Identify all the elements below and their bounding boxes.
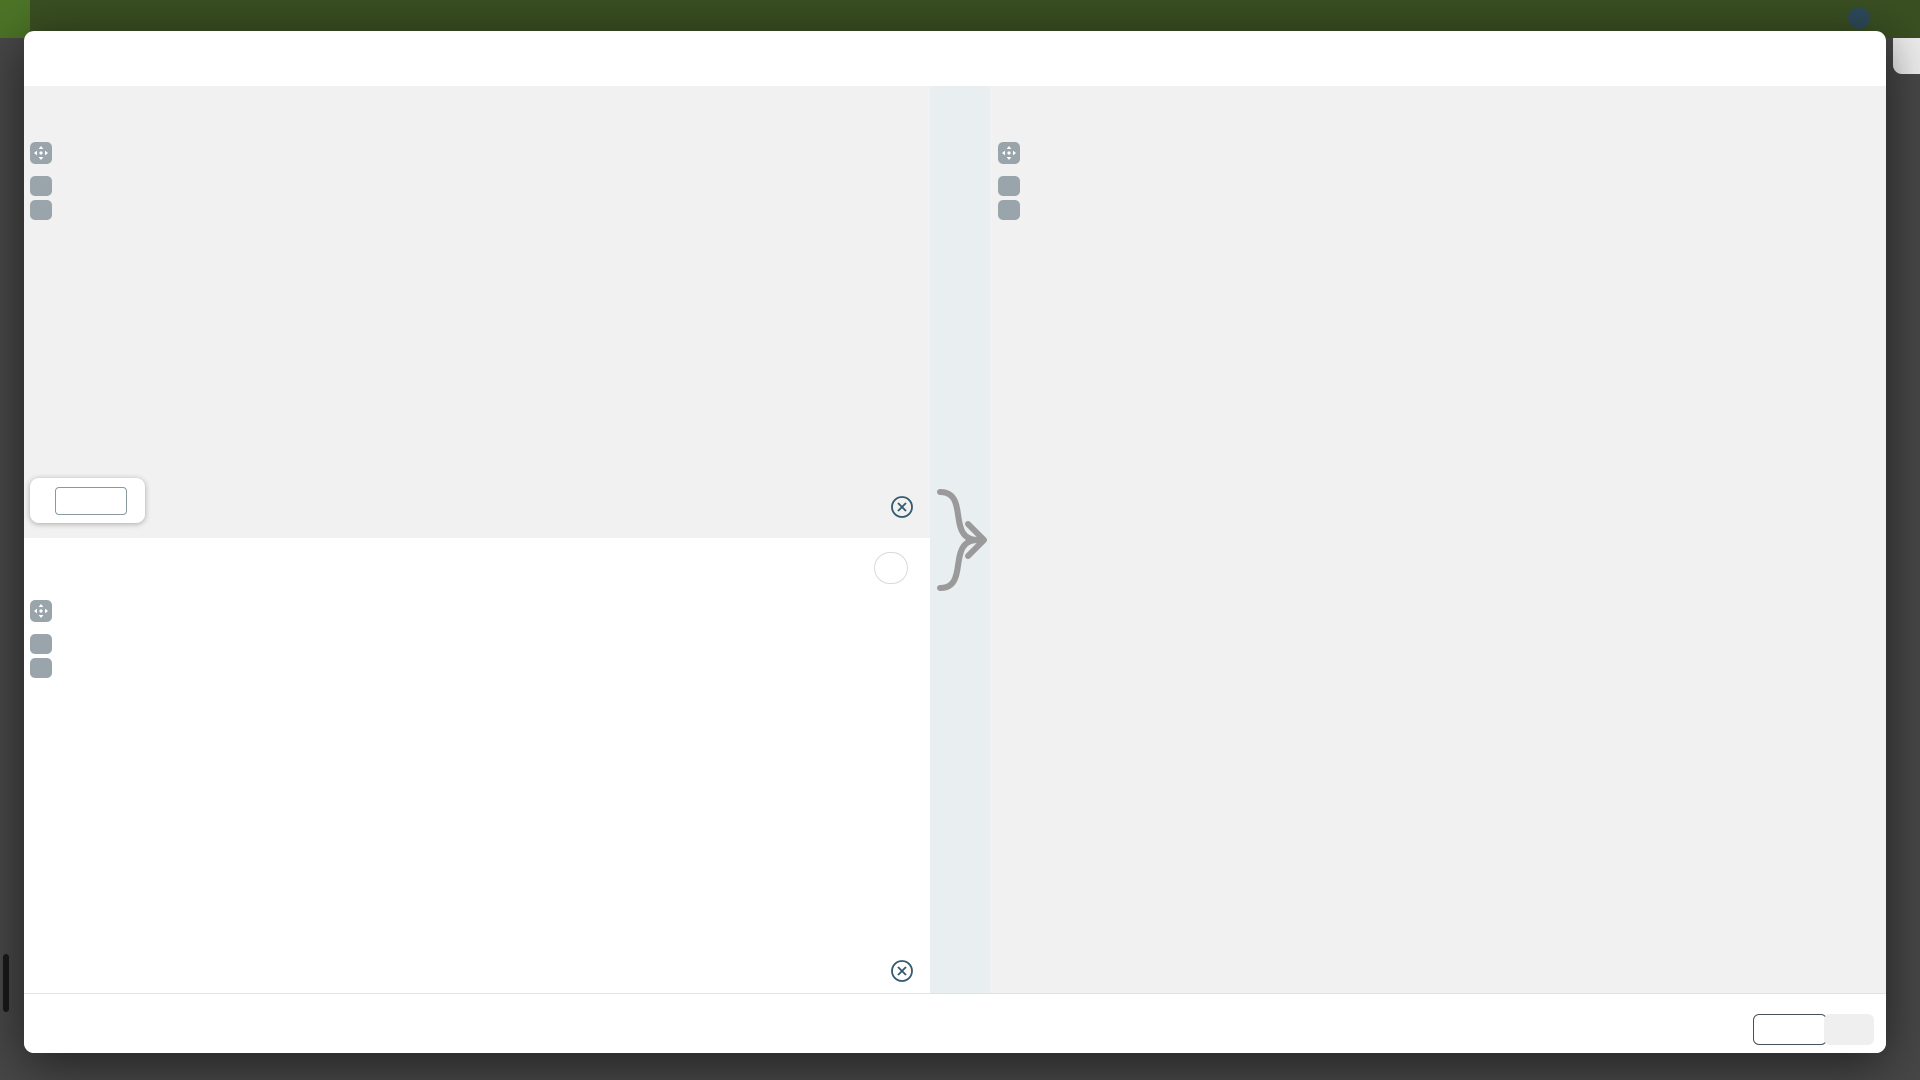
current-drawing-panel bbox=[24, 86, 930, 538]
user-menu[interactable] bbox=[1848, 7, 1884, 29]
cancel-button[interactable] bbox=[1753, 1014, 1827, 1045]
match-drawing-panel bbox=[24, 538, 930, 993]
zoom-in-button[interactable] bbox=[998, 176, 1020, 196]
merge-gutter bbox=[930, 86, 990, 993]
background-scrollbar[interactable] bbox=[3, 954, 9, 1012]
dialog-footer bbox=[24, 993, 1886, 1053]
zoom-out-button[interactable] bbox=[30, 200, 52, 220]
pan-button[interactable] bbox=[998, 142, 1020, 164]
placement-dialog bbox=[24, 31, 1886, 1053]
pan-button[interactable] bbox=[30, 142, 52, 164]
combined-display-panel bbox=[990, 86, 1886, 993]
level-badge[interactable] bbox=[874, 552, 908, 584]
remove-current-measure-icon[interactable] bbox=[890, 495, 914, 519]
pan-button[interactable] bbox=[30, 600, 52, 622]
zoom-out-button[interactable] bbox=[998, 200, 1020, 220]
combined-display-canvas[interactable] bbox=[990, 86, 1886, 993]
background-panel-corner bbox=[1893, 38, 1920, 74]
remove-match-measure-icon[interactable] bbox=[890, 959, 914, 983]
ok-button[interactable] bbox=[1824, 1014, 1874, 1045]
zoom-in-button[interactable] bbox=[30, 634, 52, 654]
merge-arrow-icon bbox=[932, 484, 990, 596]
close-icon[interactable] bbox=[1842, 42, 1872, 72]
app-logo bbox=[0, 0, 30, 38]
avatar bbox=[1848, 7, 1870, 29]
scale-box bbox=[30, 478, 145, 523]
current-drawing-canvas[interactable] bbox=[24, 86, 930, 538]
move-icon bbox=[34, 604, 48, 618]
move-icon bbox=[34, 146, 48, 160]
zoom-out-button[interactable] bbox=[30, 658, 52, 678]
scale-input[interactable] bbox=[55, 487, 127, 515]
move-icon bbox=[1002, 146, 1016, 160]
dialog-content bbox=[24, 86, 1886, 993]
zoom-in-button[interactable] bbox=[30, 176, 52, 196]
match-drawing-canvas[interactable] bbox=[24, 538, 930, 993]
